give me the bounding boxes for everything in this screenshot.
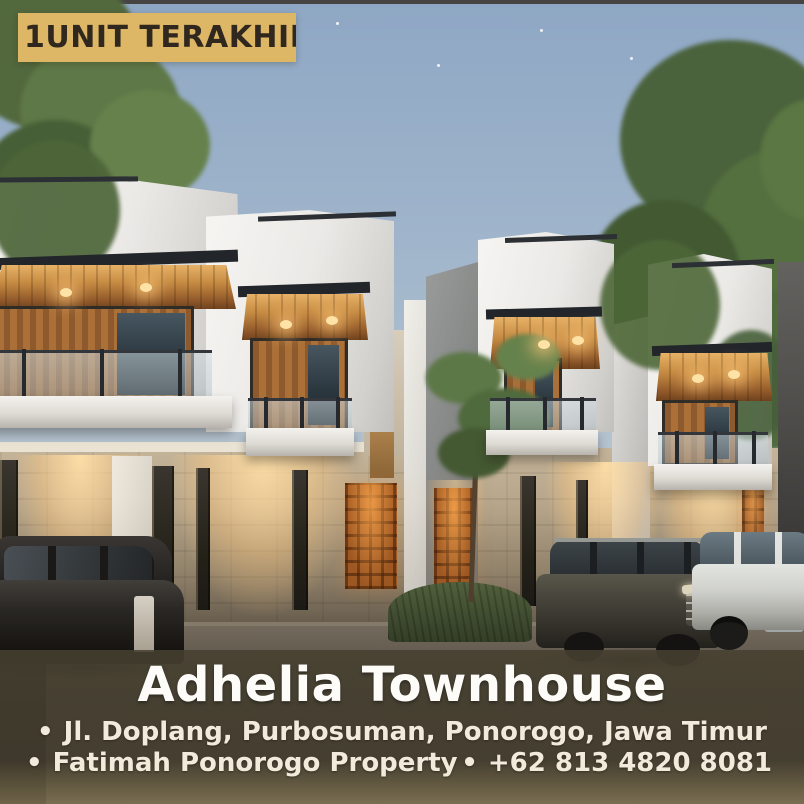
railing-post — [264, 397, 268, 432]
downlight-icon — [692, 374, 704, 383]
downlight-icon — [538, 340, 550, 349]
brand-text: Fatimah Ponorogo Property — [53, 748, 458, 778]
railing-post — [506, 397, 510, 432]
star-icon — [336, 22, 339, 25]
car-body — [692, 564, 804, 630]
white-suv — [692, 532, 804, 654]
railing-post — [713, 431, 717, 466]
phone-number: •+62 813 4820 8081 — [461, 748, 772, 778]
boundary-wall-right — [778, 262, 804, 554]
railing-post — [336, 397, 340, 432]
glass-railing — [490, 398, 596, 432]
downlight-icon — [572, 336, 584, 345]
railing-post — [543, 397, 547, 432]
phone-text: +62 813 4820 8081 — [488, 748, 772, 778]
railing-post — [752, 431, 756, 466]
wood-canopy — [0, 265, 236, 309]
info-line: •Fatimah Ponorogo Property •+62 813 4820… — [0, 748, 804, 778]
downlight-icon — [326, 316, 338, 325]
roof-rail — [554, 538, 704, 542]
car-wheel — [710, 616, 748, 650]
bullet-icon: • — [461, 748, 478, 778]
downlight-icon — [280, 320, 292, 329]
balcony-slab — [486, 430, 598, 455]
ground-window — [292, 470, 308, 610]
caption-overlay: Adhelia Townhouse •Jl. Doplang, Purbosum… — [0, 650, 804, 804]
ground-window — [520, 476, 536, 606]
property-poster: 1UNIT TERAKHIR Adhelia Townhouse •Jl. Do… — [0, 0, 804, 804]
property-title: Adhelia Townhouse — [0, 656, 804, 714]
glass-railing — [0, 350, 212, 400]
balcony-slab — [654, 464, 772, 490]
brand: •Fatimah Ponorogo Property — [26, 748, 458, 778]
downlight-icon — [140, 283, 152, 292]
wood-canopy — [656, 353, 772, 401]
glass-railing — [658, 432, 768, 466]
downlight-icon — [728, 370, 740, 379]
railing-post — [300, 397, 304, 432]
address-line: •Jl. Doplang, Purbosuman, Ponorogo, Jawa… — [0, 717, 804, 747]
railing-post — [22, 349, 26, 400]
balcony-slab — [246, 428, 354, 456]
balcony-slab — [0, 396, 232, 428]
garden-shrub — [388, 582, 532, 642]
car-windows — [4, 546, 154, 580]
star-icon — [437, 64, 440, 67]
party-wall-pier — [404, 300, 426, 632]
railing-post — [580, 397, 584, 432]
bollard — [134, 596, 154, 652]
railing-post — [100, 349, 104, 400]
glass-railing — [248, 398, 352, 432]
railing-post — [675, 431, 679, 466]
breeze-block-screen — [345, 483, 397, 589]
wood-canopy — [242, 294, 368, 340]
last-unit-badge: 1UNIT TERAKHIR — [18, 13, 296, 62]
ground-window — [196, 468, 210, 610]
downlight-icon — [60, 288, 72, 297]
bullet-icon: • — [37, 717, 54, 747]
breeze-block-screen — [434, 488, 474, 592]
badge-label: 1UNIT TERAKHIR — [18, 20, 296, 55]
front-tree-foliage — [496, 334, 560, 380]
star-icon — [540, 29, 543, 32]
star-icon — [630, 57, 633, 60]
bullet-icon: • — [26, 748, 43, 778]
address-text: Jl. Doplang, Purbosuman, Ponorogo, Jawa … — [64, 717, 767, 747]
railing-post — [178, 349, 182, 400]
